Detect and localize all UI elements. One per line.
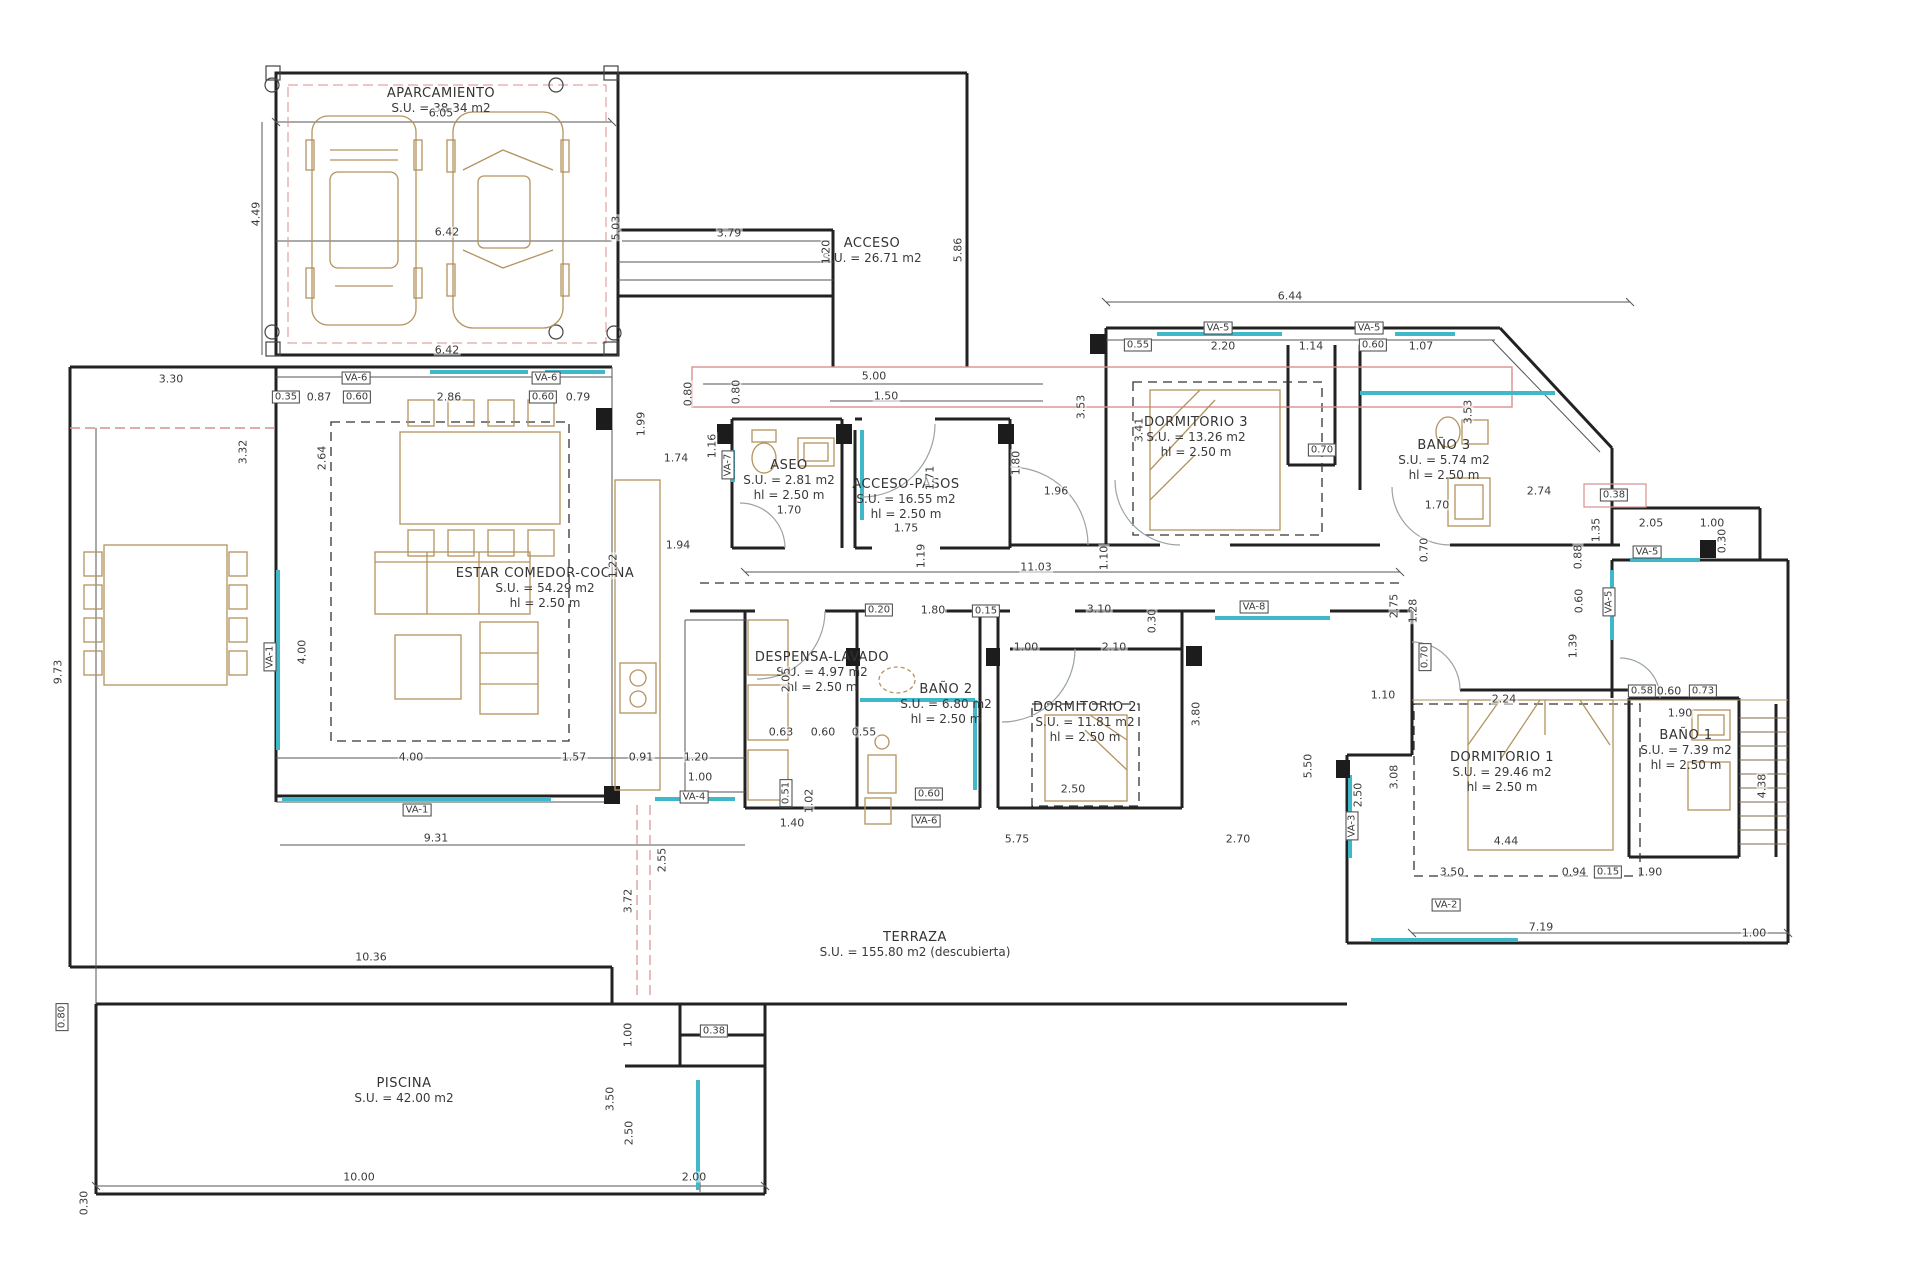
dimension-label: 1.50 bbox=[873, 391, 900, 402]
room-name: PISCINA bbox=[354, 1076, 453, 1091]
dimension-label: 1.07 bbox=[1408, 341, 1435, 352]
window-tag: VA-3 bbox=[1346, 812, 1359, 841]
dimension-label: 2.50 bbox=[1060, 784, 1087, 795]
room-name: APARCAMIENTO bbox=[387, 86, 495, 101]
dimension-label: 0.63 bbox=[768, 727, 795, 738]
room-name: DESPENSA-LAVADO bbox=[755, 650, 889, 665]
room-label-bano-3: BAÑO 3S.U. = 5.74 m2hl = 2.50 m bbox=[1398, 438, 1490, 483]
dimension-label: 0.30 bbox=[1147, 608, 1158, 635]
dimension-label: 1.74 bbox=[663, 453, 690, 464]
window-tag: VA-7 bbox=[722, 451, 735, 480]
dimension-label: 3.53 bbox=[1076, 394, 1087, 421]
room-detail: S.U. = 11.81 m2 bbox=[1033, 715, 1137, 730]
room-detail: S.U. = 7.39 m2 bbox=[1640, 743, 1732, 758]
window-tag: VA-5 bbox=[1633, 546, 1662, 559]
room-name: DORMITORIO 2 bbox=[1033, 700, 1137, 715]
dimension-label: 3.10 bbox=[1086, 604, 1113, 615]
room-detail: hl = 2.50 m bbox=[456, 596, 634, 611]
room-detail: hl = 2.50 m bbox=[1033, 730, 1137, 745]
dimension-label: 0.70 bbox=[1419, 537, 1430, 564]
dimension-label: 2.86 bbox=[436, 392, 463, 403]
room-detail: hl = 2.50 m bbox=[1450, 780, 1554, 795]
dimension-label: 9.31 bbox=[423, 833, 450, 844]
room-name: ACCESO-PASOS bbox=[852, 477, 959, 492]
dimension-label: 0.55 bbox=[1124, 339, 1152, 352]
dimension-label: 3.41 bbox=[1134, 417, 1145, 444]
dimension-label: 7.19 bbox=[1528, 922, 1555, 933]
dimension-label: 4.00 bbox=[398, 752, 425, 763]
room-detail: hl = 2.50 m bbox=[852, 507, 959, 522]
window-tag: VA-5 bbox=[1355, 322, 1384, 335]
room-detail: S.U. = 16.55 m2 bbox=[852, 492, 959, 507]
room-label-bano-2: BAÑO 2S.U. = 6.80 m2hl = 2.50 m bbox=[900, 682, 992, 727]
dimension-label: 1.02 bbox=[804, 788, 815, 815]
dimension-label: 0.88 bbox=[1573, 544, 1584, 571]
dimension-label: 6.42 bbox=[434, 345, 461, 356]
room-detail: S.U. = 4.97 m2 bbox=[755, 665, 889, 680]
dimension-label: 0.73 bbox=[1689, 685, 1717, 698]
room-name: TERRAZA bbox=[820, 930, 1011, 945]
dimension-label: 2.50 bbox=[1353, 782, 1364, 809]
dimension-label: 0.38 bbox=[1600, 489, 1628, 502]
dimension-label: 2.75 bbox=[1389, 593, 1400, 620]
room-name: BAÑO 2 bbox=[900, 682, 992, 697]
dimension-label: 4.38 bbox=[1757, 773, 1768, 800]
dimension-label: 3.50 bbox=[605, 1086, 616, 1113]
dimension-label: 1.16 bbox=[707, 433, 718, 460]
room-name: DORMITORIO 3 bbox=[1144, 415, 1248, 430]
dimension-label: 10.36 bbox=[354, 952, 388, 963]
dimension-label: 0.15 bbox=[972, 605, 1000, 618]
dimension-label: 1.94 bbox=[665, 540, 692, 551]
dimension-label: 6.42 bbox=[434, 227, 461, 238]
room-label-dormitorio-1: DORMITORIO 1S.U. = 29.46 m2hl = 2.50 m bbox=[1450, 750, 1554, 795]
dimension-label: 1.10 bbox=[1370, 690, 1397, 701]
room-detail: S.U. = 42.00 m2 bbox=[354, 1091, 453, 1106]
dimension-label: 1.96 bbox=[1043, 486, 1070, 497]
dimension-label: 1.70 bbox=[776, 505, 803, 516]
dimension-label: 3.53 bbox=[1463, 399, 1474, 426]
dimension-label: 1.10 bbox=[1099, 545, 1110, 572]
dimension-label: 0.94 bbox=[1561, 867, 1588, 878]
window-tag: VA-6 bbox=[342, 372, 371, 385]
dimension-label: 0.58 bbox=[1628, 685, 1656, 698]
dimension-label: 0.60 bbox=[1574, 588, 1585, 615]
dimension-label: 5.50 bbox=[1303, 753, 1314, 780]
dimension-label: 5.86 bbox=[953, 237, 964, 264]
room-detail: hl = 2.50 m bbox=[1640, 758, 1732, 773]
dimension-label: 3.50 bbox=[1439, 867, 1466, 878]
dimension-label: 2.10 bbox=[1101, 642, 1128, 653]
room-name: DORMITORIO 1 bbox=[1450, 750, 1554, 765]
dimension-label: 1.20 bbox=[821, 239, 832, 266]
room-detail: S.U. = 13.26 m2 bbox=[1144, 430, 1248, 445]
dimension-label: 1.00 bbox=[623, 1022, 634, 1049]
room-label-acceso: ACCESOS.U. = 26.71 m2 bbox=[822, 236, 921, 266]
dimension-label: 0.87 bbox=[306, 392, 333, 403]
dimension-label: 5.75 bbox=[1004, 834, 1031, 845]
dimension-label: 11.03 bbox=[1019, 562, 1053, 573]
room-detail: S.U. = 26.71 m2 bbox=[822, 251, 921, 266]
dimension-label: 0.60 bbox=[1656, 686, 1683, 697]
room-detail: hl = 2.50 m bbox=[1398, 468, 1490, 483]
dimension-label: 0.30 bbox=[79, 1190, 90, 1217]
dimension-label: 3.32 bbox=[238, 439, 249, 466]
dimension-label: 2.00 bbox=[681, 1172, 708, 1183]
dimension-label: 3.08 bbox=[1389, 764, 1400, 791]
dimension-label: 0.60 bbox=[529, 391, 557, 404]
room-detail: hl = 2.50 m bbox=[1144, 445, 1248, 460]
window-tag: VA-1 bbox=[403, 804, 432, 817]
dimension-label: 4.49 bbox=[251, 201, 262, 228]
dimension-label: 1.39 bbox=[1568, 633, 1579, 660]
dimension-label: 0.80 bbox=[683, 381, 694, 408]
dimension-label: 2.05 bbox=[781, 667, 792, 694]
room-name: BAÑO 1 bbox=[1640, 728, 1732, 743]
dimension-label: 1.28 bbox=[1408, 598, 1419, 625]
dimension-label: 1.35 bbox=[1591, 517, 1602, 544]
room-name: ASEO bbox=[743, 458, 835, 473]
dimension-label: 0.20 bbox=[865, 604, 893, 617]
dimension-label: 1.80 bbox=[920, 605, 947, 616]
dimension-label: 0.15 bbox=[1594, 866, 1622, 879]
window-tag: VA-6 bbox=[532, 372, 561, 385]
window-tag: VA-2 bbox=[1432, 899, 1461, 912]
room-detail: S.U. = 155.80 m2 (descubierta) bbox=[820, 945, 1011, 960]
dimension-label: 1.90 bbox=[1637, 867, 1664, 878]
dimension-label: 3.80 bbox=[1191, 701, 1202, 728]
dimension-label: 1.71 bbox=[925, 465, 936, 492]
dimension-label: 2.50 bbox=[624, 1120, 635, 1147]
dimension-label: 3.72 bbox=[623, 888, 634, 915]
dimension-label: 2.05 bbox=[1638, 518, 1665, 529]
dimension-label: 0.38 bbox=[700, 1025, 728, 1038]
dimension-label: 0.91 bbox=[628, 752, 655, 763]
dimension-label: 1.99 bbox=[636, 411, 647, 438]
dimension-label: 2.74 bbox=[1526, 486, 1553, 497]
dimension-label: 6.44 bbox=[1277, 291, 1304, 302]
dimension-label: 1.70 bbox=[1424, 500, 1451, 511]
dimension-label: 1.75 bbox=[893, 523, 920, 534]
room-label-dormitorio-2: DORMITORIO 2S.U. = 11.81 m2hl = 2.50 m bbox=[1033, 700, 1137, 745]
dimension-label: 0.70 bbox=[1419, 643, 1432, 671]
window-tag: VA-1 bbox=[264, 643, 277, 672]
dimension-label: 0.60 bbox=[810, 727, 837, 738]
room-label-piscina: PISCINAS.U. = 42.00 m2 bbox=[354, 1076, 453, 1106]
dimension-label: 0.80 bbox=[56, 1003, 69, 1031]
dimension-label: 5.03 bbox=[611, 215, 622, 242]
room-detail: hl = 2.50 m bbox=[900, 712, 992, 727]
room-name: BAÑO 3 bbox=[1398, 438, 1490, 453]
dimension-label: 1.19 bbox=[916, 543, 927, 570]
dimension-label: 4.00 bbox=[297, 639, 308, 666]
dimension-label: 2.64 bbox=[317, 445, 328, 472]
dimension-label: 1.00 bbox=[687, 772, 714, 783]
window-tag: VA-6 bbox=[912, 815, 941, 828]
window-tag: VA-4 bbox=[680, 791, 709, 804]
room-label-despensa-lavado: DESPENSA-LAVADOS.U. = 4.97 m2hl = 2.50 m bbox=[755, 650, 889, 695]
room-detail: S.U. = 5.74 m2 bbox=[1398, 453, 1490, 468]
dimension-label: 0.60 bbox=[343, 391, 371, 404]
dimension-label: 0.30 bbox=[1717, 528, 1728, 555]
dimension-label: 2.24 bbox=[1491, 694, 1518, 705]
dimension-label: 3.79 bbox=[716, 228, 743, 239]
dimension-label: 9.73 bbox=[53, 659, 64, 686]
room-label-terraza: TERRAZAS.U. = 155.80 m2 (descubierta) bbox=[820, 930, 1011, 960]
dimension-label: 0.55 bbox=[851, 727, 878, 738]
dimension-label: 10.00 bbox=[342, 1172, 376, 1183]
window-tag: VA-8 bbox=[1240, 601, 1269, 614]
room-detail: S.U. = 54.29 m2 bbox=[456, 581, 634, 596]
room-detail: hl = 2.50 m bbox=[755, 680, 889, 695]
dimension-label: 6.05 bbox=[428, 108, 455, 119]
dimension-label: 5.00 bbox=[861, 371, 888, 382]
room-name: ACCESO bbox=[822, 236, 921, 251]
dimension-label: 1.80 bbox=[1011, 450, 1022, 477]
dimension-label: 1.00 bbox=[1013, 642, 1040, 653]
dimension-label: 3.30 bbox=[158, 374, 185, 385]
dimension-label: 1.20 bbox=[683, 752, 710, 763]
room-label-acceso-pasos: ACCESO-PASOSS.U. = 16.55 m2hl = 2.50 m bbox=[852, 477, 959, 522]
dimension-label: 2.55 bbox=[657, 847, 668, 874]
dimension-label: 0.60 bbox=[915, 788, 943, 801]
dimension-label: 0.35 bbox=[272, 391, 300, 404]
dimension-label: 0.60 bbox=[1359, 339, 1387, 352]
labels-layer: APARCAMIENTOS.U. = 38.34 m2ACCESOS.U. = … bbox=[0, 0, 1920, 1280]
room-detail: hl = 2.50 m bbox=[743, 488, 835, 503]
dimension-label: 4.44 bbox=[1493, 836, 1520, 847]
window-tag: VA-5 bbox=[1204, 322, 1233, 335]
dimension-label: 1.40 bbox=[779, 818, 806, 829]
window-tag: VA-5 bbox=[1603, 588, 1616, 617]
dimension-label: 0.79 bbox=[565, 392, 592, 403]
dimension-label: 1.90 bbox=[1667, 708, 1694, 719]
room-label-bano-1: BAÑO 1S.U. = 7.39 m2hl = 2.50 m bbox=[1640, 728, 1732, 773]
dimension-label: 1.57 bbox=[561, 752, 588, 763]
dimension-label: 1.14 bbox=[1298, 341, 1325, 352]
dimension-label: 0.70 bbox=[1308, 444, 1336, 457]
dimension-label: 0.80 bbox=[731, 379, 742, 406]
room-label-aseo: ASEOS.U. = 2.81 m2hl = 2.50 m bbox=[743, 458, 835, 503]
dimension-label: 1.00 bbox=[1741, 928, 1768, 939]
room-detail: S.U. = 29.46 m2 bbox=[1450, 765, 1554, 780]
room-detail: S.U. = 6.80 m2 bbox=[900, 697, 992, 712]
dimension-label: 1.22 bbox=[608, 553, 619, 580]
room-label-dormitorio-3: DORMITORIO 3S.U. = 13.26 m2hl = 2.50 m bbox=[1144, 415, 1248, 460]
floor-plan-canvas: APARCAMIENTOS.U. = 38.34 m2ACCESOS.U. = … bbox=[0, 0, 1920, 1280]
dimension-label: 0.51 bbox=[780, 779, 793, 807]
dimension-label: 2.70 bbox=[1225, 834, 1252, 845]
room-detail: S.U. = 2.81 m2 bbox=[743, 473, 835, 488]
dimension-label: 2.20 bbox=[1210, 341, 1237, 352]
